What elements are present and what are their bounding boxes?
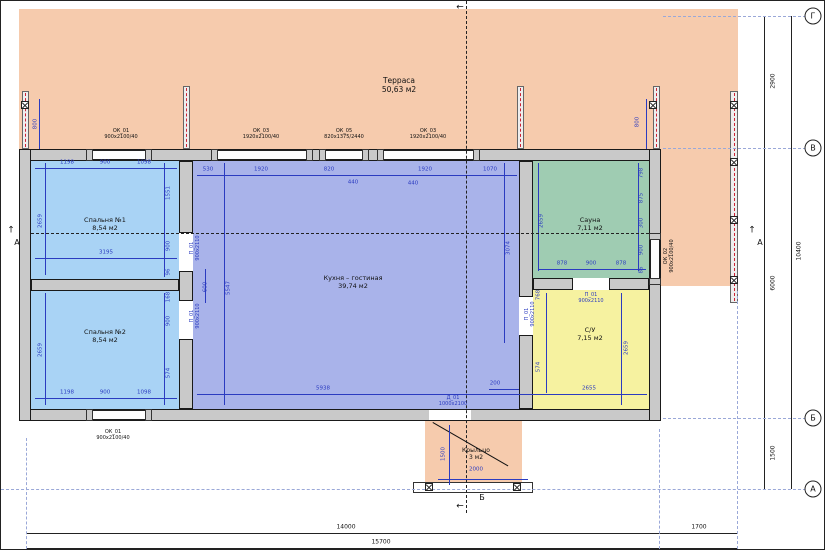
dim-label: 3074: [506, 241, 513, 255]
window-ok05: [319, 150, 369, 160]
section-mark: ↑: [748, 226, 756, 237]
dim-label: 800: [33, 119, 40, 130]
window-tag: ОК_01 900х2100/40: [96, 429, 129, 441]
dim-label: 900: [586, 261, 597, 268]
dim-line: [438, 479, 528, 480]
dim-line: [164, 163, 165, 277]
wall-bedrooms-kitchen-a: [179, 161, 193, 233]
column-post: [730, 101, 738, 109]
dim-label: 2000: [469, 467, 483, 474]
dim-label: 2659: [624, 341, 631, 355]
dim-label: 1920: [418, 167, 432, 174]
door-tag: П_01 900х2110: [189, 303, 201, 328]
dim-label: 96: [166, 269, 173, 276]
dim-label: 86: [639, 267, 646, 274]
dim-label: 1098: [137, 390, 151, 397]
door-tag: П_01 900х2110: [524, 301, 536, 326]
wall-bedrooms-kitchen-c: [179, 339, 193, 409]
dim-label: 900: [166, 241, 173, 252]
dim-label: 875: [639, 193, 646, 204]
dim-label: 768: [536, 290, 543, 301]
column-strip-left: [22, 91, 29, 149]
window-ok01-top: [86, 150, 152, 160]
dim-line: [35, 398, 177, 399]
dim-line: [537, 394, 647, 395]
dim-label: 5547: [226, 281, 233, 295]
dim-label: 900: [100, 390, 111, 397]
dim-label: 300: [639, 218, 646, 229]
dim-line: [489, 389, 519, 390]
column-post: [730, 276, 738, 284]
dim-label: 900: [166, 316, 173, 327]
dim-line-bottom-2: [26, 548, 737, 549]
wall-bedrooms-kitchen-b: [179, 271, 193, 301]
wall-left: [19, 149, 31, 421]
wall-kitchen-sauna-b: [519, 335, 533, 409]
wall-right: [649, 149, 661, 421]
dim-label: 900: [639, 245, 646, 256]
dim-label: 200: [490, 381, 501, 388]
axis-line-g: [663, 16, 811, 17]
dim-line: [45, 163, 46, 275]
window-ok03-right: [377, 150, 480, 160]
grid-axis-bubble: Г: [805, 8, 822, 25]
column-post: [730, 158, 738, 166]
dim-label: 878: [557, 261, 568, 268]
axis-line-x3: [737, 291, 738, 549]
dim-line: [646, 99, 647, 149]
column-post: [730, 216, 738, 224]
dim-label: 878: [616, 261, 627, 268]
dim-label: 2659: [38, 214, 45, 228]
dim-label: 1500: [441, 447, 448, 461]
dim-line: [546, 293, 547, 393]
dim-label: 1070: [483, 167, 497, 174]
dim-label: 574: [536, 362, 543, 373]
grid-axis-bubble: Б: [805, 410, 822, 427]
axis-line-v: [663, 148, 811, 149]
dim-label: 2900: [769, 73, 776, 88]
door-tag: П_01 900х2110: [578, 292, 603, 304]
section-mark: ↑: [7, 226, 15, 237]
dim-label: 1098: [137, 160, 151, 167]
grid-axis-bubble: А: [805, 481, 822, 498]
wall-sauna-bath-a: [533, 278, 573, 290]
dim-label: 168: [166, 292, 173, 303]
dim-label: 900: [100, 160, 111, 167]
dim-line: [621, 293, 622, 405]
window-tag: ОК_01 900х2100/40: [104, 128, 137, 140]
dim-label: 5938: [316, 386, 330, 393]
dim-line: [197, 175, 517, 176]
dim-label: 600: [203, 282, 210, 293]
axis-line-a: [1, 489, 811, 490]
room-label: Кухня – гостиная 39,74 м2: [324, 275, 383, 291]
section-mark: А: [14, 238, 19, 248]
room-label: С/У 7,15 м2: [577, 327, 603, 343]
room-label: Спальня №1 8,54 м2: [84, 217, 126, 233]
room-label: Спальня №2 8,54 м2: [84, 329, 126, 345]
window-tag: ОК_05 820х1375/2440: [324, 128, 364, 140]
section-mark: Б: [479, 493, 485, 503]
dim-label: 574: [166, 368, 173, 379]
dim-line: [45, 293, 46, 405]
column-strip-mid2: [517, 86, 524, 149]
dim-label: 10400: [795, 241, 802, 260]
window-tag: ОК_02 900х2100/40: [663, 239, 675, 272]
window-ok03-left: [211, 150, 313, 160]
section-mark: ←: [456, 3, 464, 14]
dim-label: 15700: [371, 538, 390, 545]
grid-axis-bubble: В: [805, 140, 822, 157]
column-post: [649, 101, 657, 109]
column-post: [425, 483, 433, 491]
axis-line-x2: [659, 429, 660, 549]
dim-label: 440: [408, 181, 419, 188]
room-label: Крыльцо 3 м2: [462, 447, 490, 461]
dim-label: 1551: [166, 186, 173, 200]
wall-bedroom-divider: [31, 279, 179, 291]
dim-label: 2659: [539, 214, 546, 228]
dim-line: [35, 168, 177, 169]
dim-label: 798: [639, 168, 646, 179]
section-mark: ←: [456, 502, 464, 513]
dim-line: [35, 258, 177, 259]
axis-line-x1: [26, 438, 27, 549]
dim-line-bottom-1: [26, 533, 737, 534]
floor-plan-canvas: Терраса 50,63 м2Спальня №1 8,54 м2Спальн…: [0, 0, 825, 550]
dim-label: 440: [348, 180, 359, 187]
section-line-b: [466, 1, 467, 513]
dim-label: 1920: [254, 167, 268, 174]
dim-label: 1198: [60, 160, 74, 167]
dim-line: [538, 269, 646, 270]
wall-sauna-bath-b: [609, 278, 649, 290]
dim-label: 820: [324, 167, 335, 174]
dim-label: 1700: [691, 523, 706, 530]
column-post: [513, 483, 521, 491]
door-ok02-terrace: [650, 233, 660, 285]
section-mark: А: [757, 238, 762, 248]
dim-label: 1198: [60, 390, 74, 397]
dim-label: 800: [635, 117, 642, 128]
dim-label: 530: [203, 167, 214, 174]
dim-label: 1500: [769, 445, 776, 460]
door-tag: Д_01 1000х2100: [439, 395, 467, 407]
dim-label: 3195: [99, 250, 113, 257]
dim-line: [164, 293, 165, 405]
dim-line: [449, 425, 450, 485]
dim-label: 6000: [769, 275, 776, 290]
room-label: Сауна 7,11 м2: [577, 217, 603, 233]
column-post: [21, 101, 29, 109]
window-tag: ОК_03 1920х2100/40: [410, 128, 446, 140]
column-strip-mid3: [653, 86, 660, 149]
column-strip-right: [730, 91, 738, 303]
dim-line: [197, 394, 541, 395]
section-line-a: [31, 233, 649, 234]
door-d01-opening: [429, 410, 471, 420]
wall-kitchen-sauna-a: [519, 161, 533, 297]
column-strip-mid1: [183, 86, 190, 149]
door-tag: П_01 900х2110: [189, 235, 201, 260]
dim-label: 2659: [38, 343, 45, 357]
window-ok01-bottom: [86, 410, 152, 420]
room-label: Терраса 50,63 м2: [382, 76, 416, 94]
dim-label: 2655: [582, 386, 596, 393]
window-tag: ОК_03 1920х2100/40: [243, 128, 279, 140]
dim-label: 14000: [336, 523, 355, 530]
